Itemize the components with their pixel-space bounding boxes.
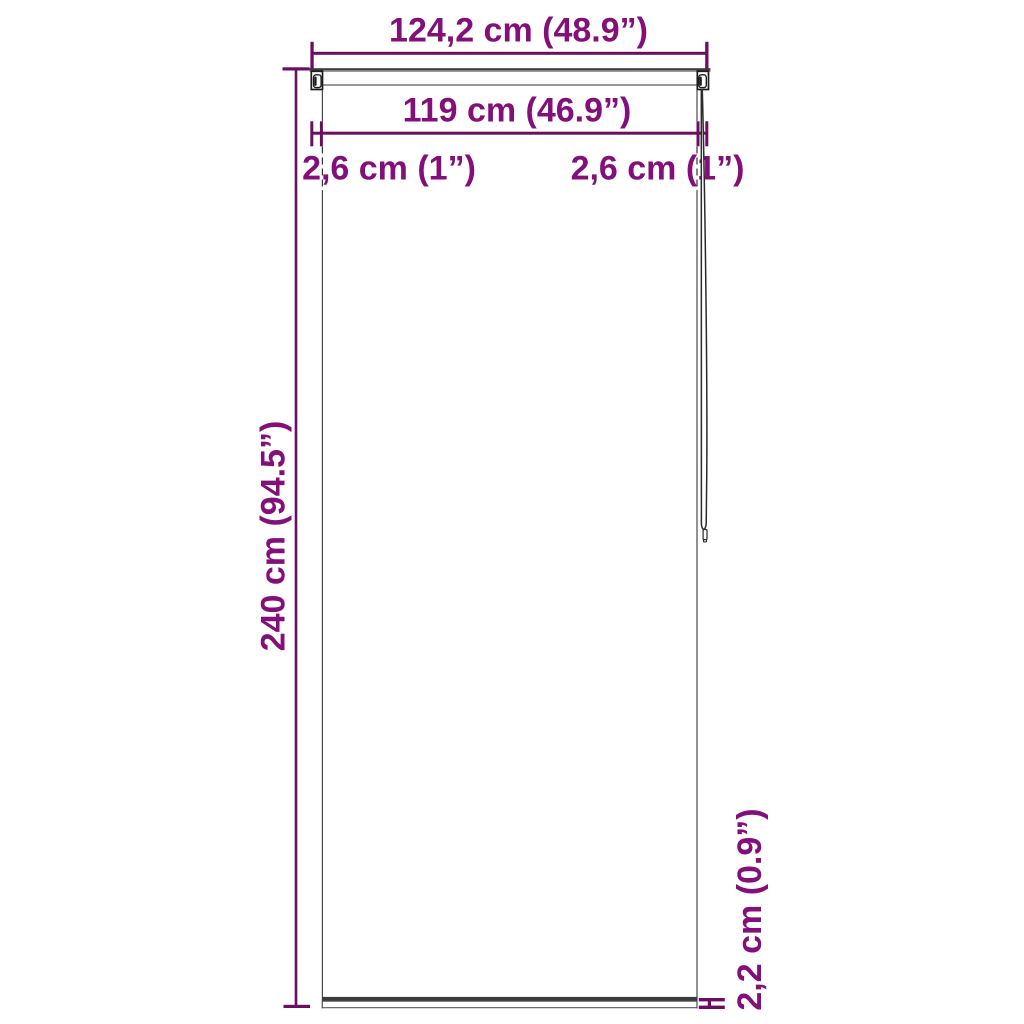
svg-text:2,2 cm (0.9”): 2,2 cm (0.9”) — [731, 808, 769, 1010]
svg-text:119 cm (46.9”): 119 cm (46.9”) — [403, 91, 632, 129]
svg-text:2,6 cm (1”): 2,6 cm (1”) — [302, 149, 476, 187]
svg-text:124,2 cm (48.9”): 124,2 cm (48.9”) — [389, 12, 648, 50]
svg-text:240 cm (94.5”): 240 cm (94.5”) — [255, 421, 293, 652]
svg-text:2,6 cm (1”): 2,6 cm (1”) — [571, 149, 745, 187]
